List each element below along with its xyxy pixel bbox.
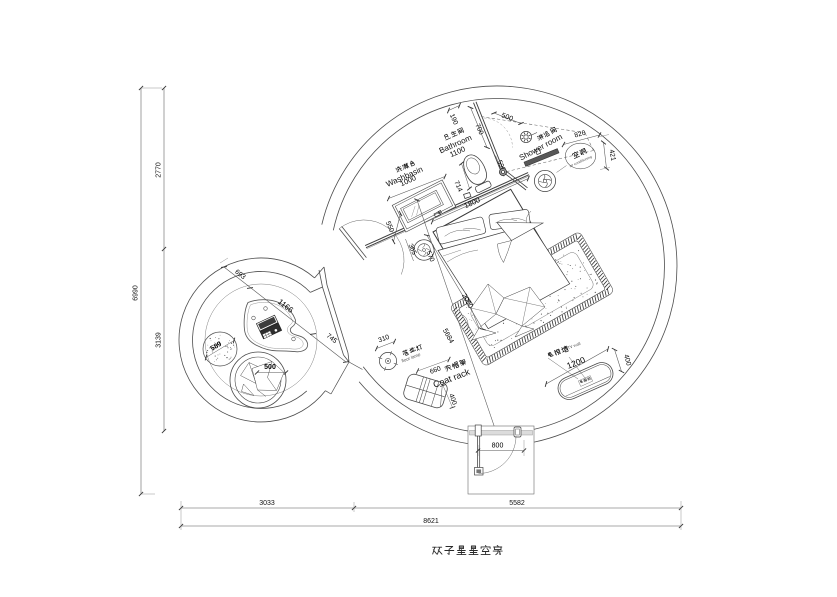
svg-text:500: 500 [264, 364, 276, 371]
svg-text:2770: 2770 [156, 162, 163, 178]
svg-text:8621: 8621 [423, 518, 439, 525]
svg-text:5582: 5582 [509, 500, 525, 507]
svg-text:3139: 3139 [156, 332, 163, 348]
svg-text:6990: 6990 [133, 285, 140, 301]
svg-text:800: 800 [492, 443, 504, 450]
svg-text:3033: 3033 [259, 500, 275, 507]
